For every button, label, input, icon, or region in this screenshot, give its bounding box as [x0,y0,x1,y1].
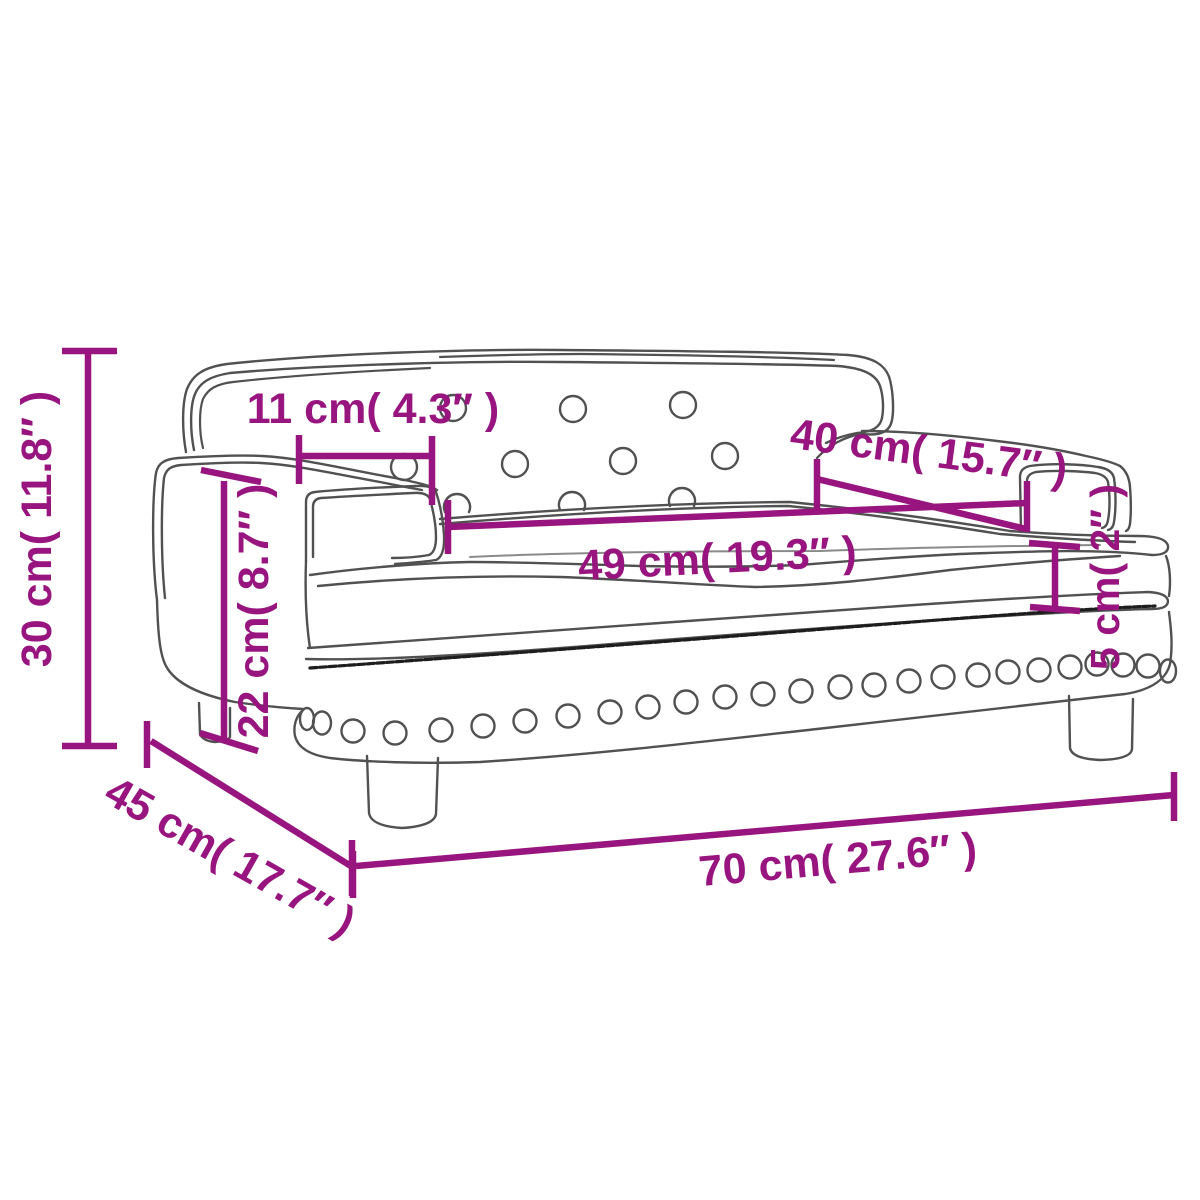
svg-text:22 cm( 8.7″ ): 22 cm( 8.7″ ) [230,484,278,739]
svg-text:5 cm( 2″ ): 5 cm( 2″ ) [1082,484,1128,670]
svg-text:30 cm( 11.8″ ): 30 cm( 11.8″ ) [13,391,61,667]
svg-text:11 cm( 4.3″ ): 11 cm( 4.3″ ) [247,385,499,433]
